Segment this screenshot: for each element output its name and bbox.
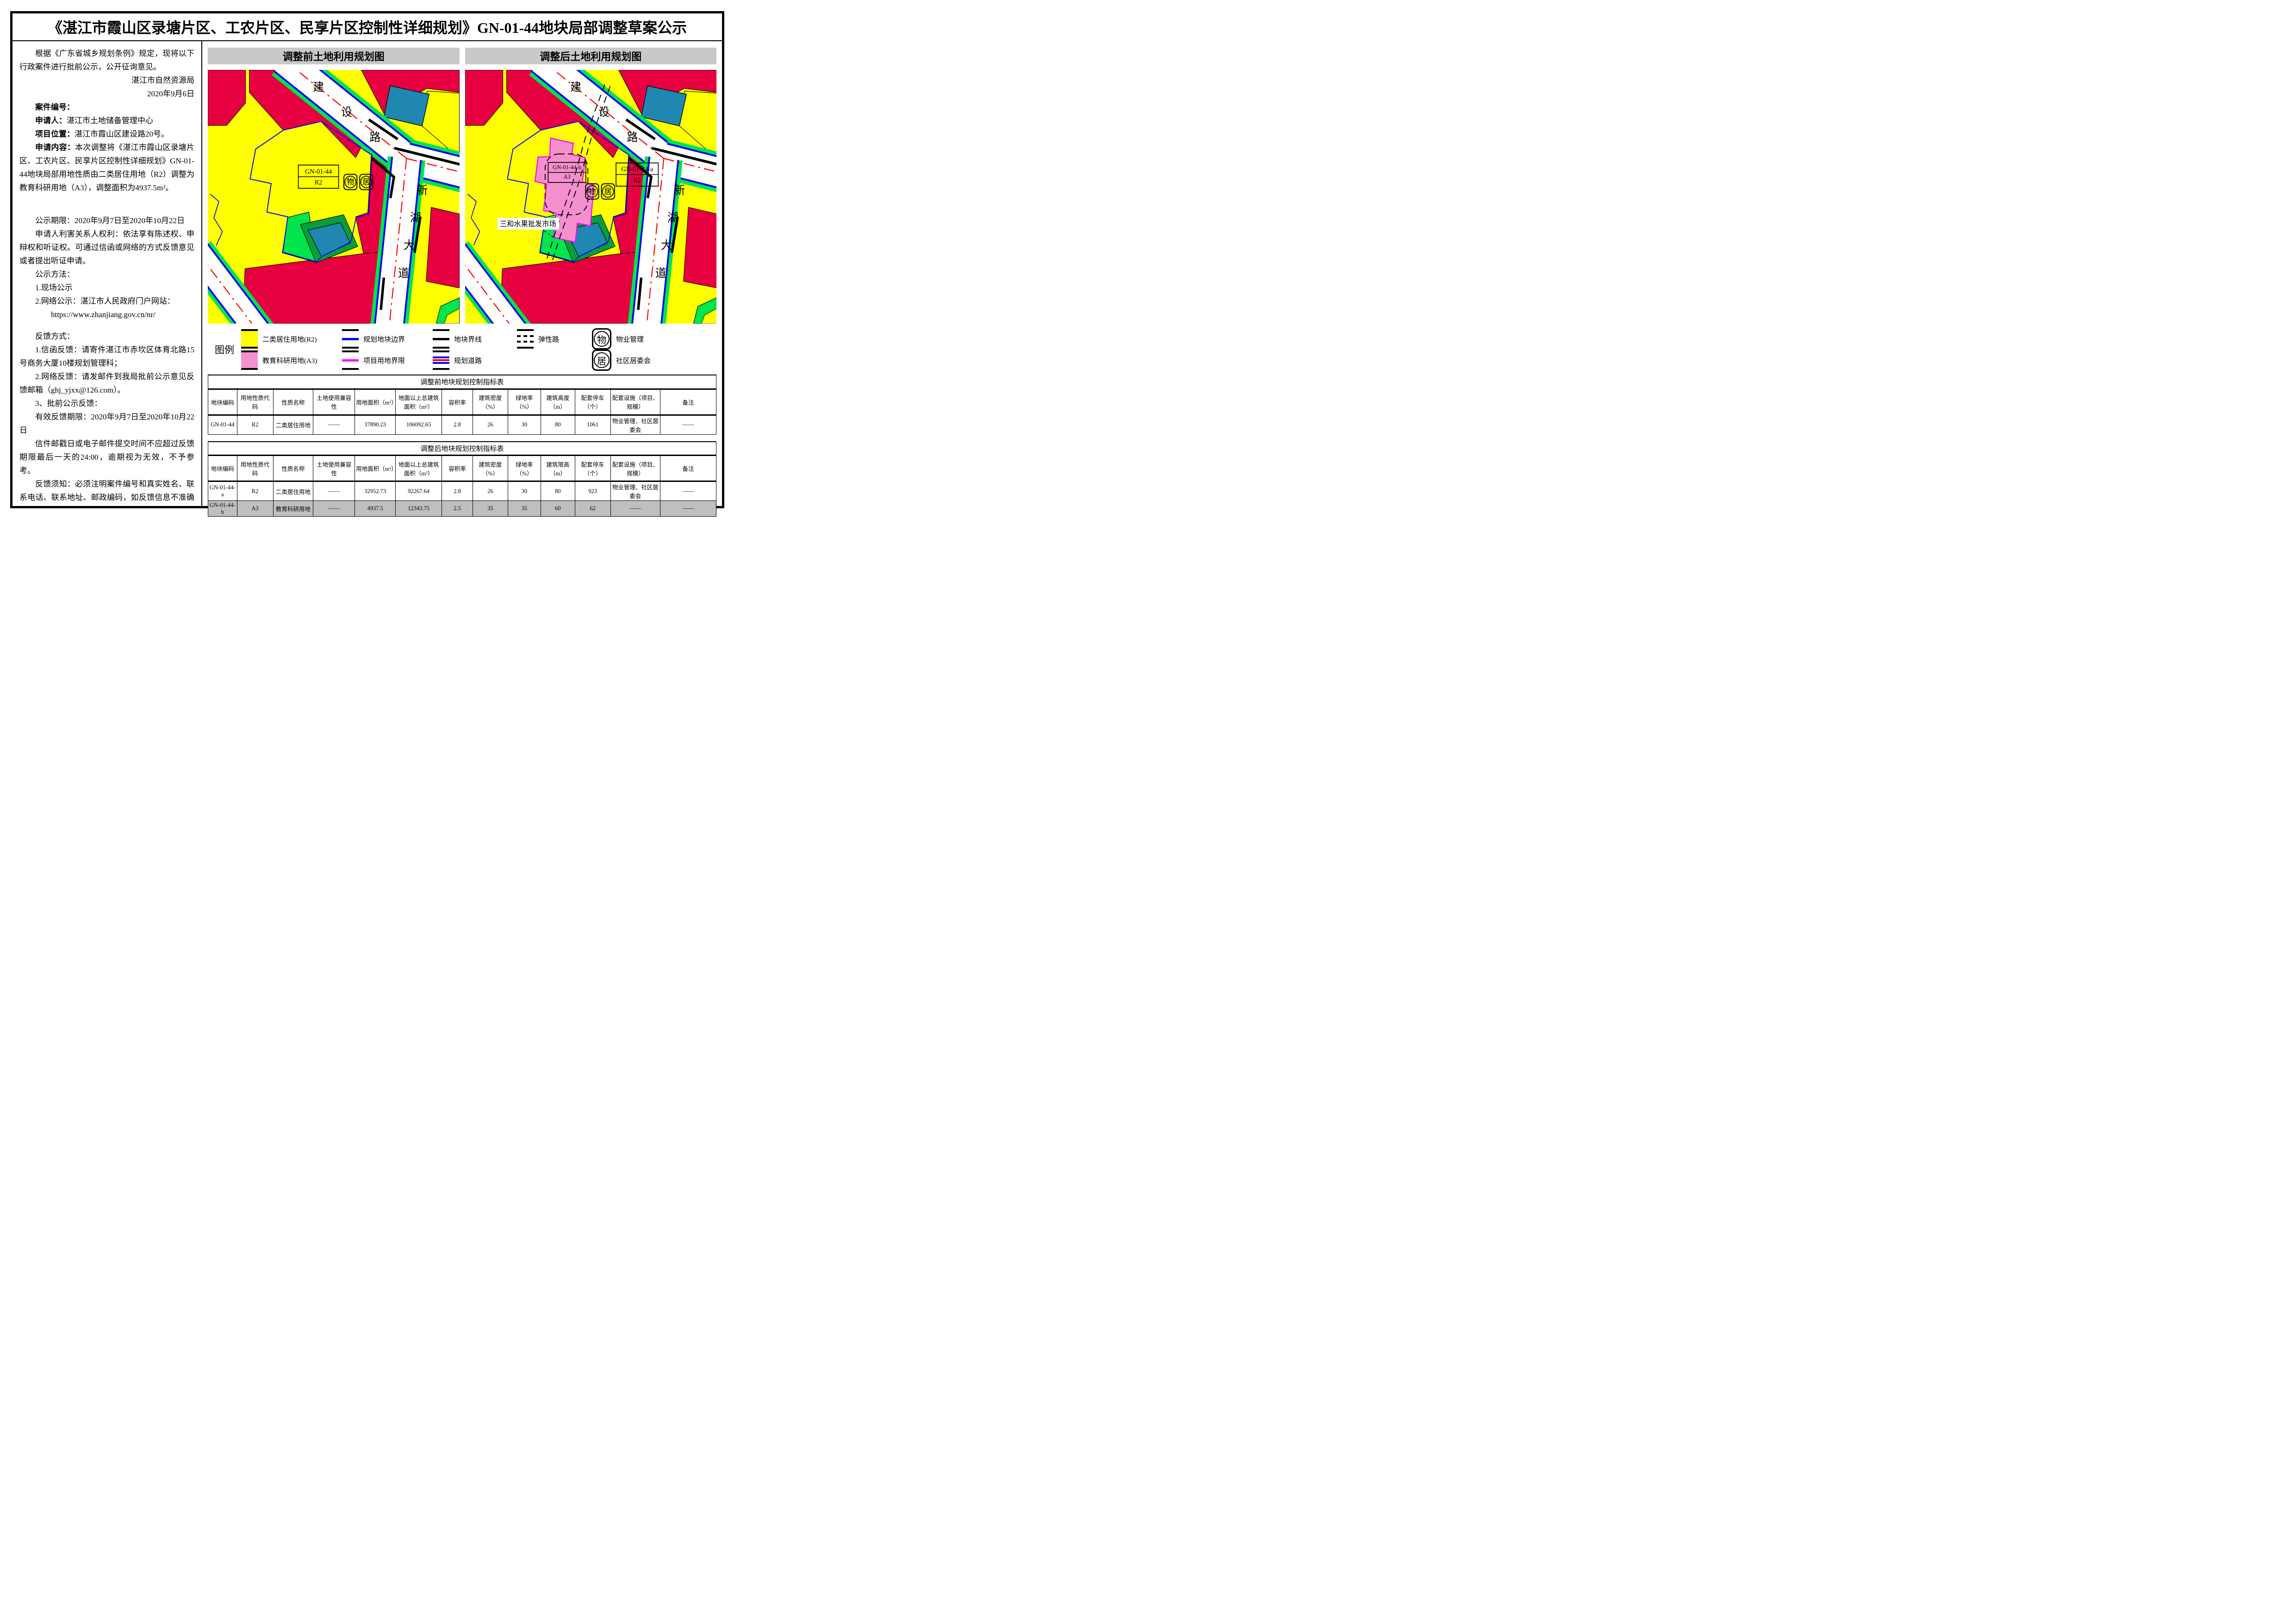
table-cell: R2 [237,481,273,501]
legend-swatch-line [433,329,449,349]
svg-text:物: 物 [347,177,354,186]
parcel-use-code: A3 [563,174,570,180]
legend-swatch-fill [241,329,258,349]
table-title: 调整后地块规划控制指标表 [208,442,716,456]
column-header: 配套停车（个） [575,456,610,481]
legend-label: 社区居委会 [616,356,651,365]
plans-and-tables-panel: 调整前土地利用规划图 GN-01-44R2物居建设路新湖大道 调整后土地利用规划… [202,41,722,506]
legend-item: 二类居住用地(R2) [241,329,342,349]
page-title: 《湛江市霞山区录塘片区、工农片区、民享片区控制性详细规划》GN-01-44地块局… [48,16,687,37]
column-header: 土地使用兼容性 [313,389,355,415]
table-cell: 80 [541,415,575,434]
road-name-char: 湖 [410,211,421,225]
road-name-char: 大 [404,238,415,252]
indicator-table: 调整后地块规划控制指标表地块编码用地性质代码性质名称土地使用兼容性用地面积（m²… [208,441,716,517]
legend-label: 项目用地界限 [363,356,405,365]
table-cell: 35 [473,501,508,517]
column-header: 建筑密度（%） [473,456,508,481]
table-cell: 2.5 [442,501,473,517]
legend-item: 规划道路 [433,350,517,370]
column-header: 配套设施（项目、规模） [610,456,660,481]
legend-grid: 二类居住用地(R2)规划地块边界地块界线弹性路物物业管理教育科研用地(A3)项目… [241,328,716,371]
notice-paragraph: 案件编号： [19,100,194,114]
table-cell: 60 [541,501,575,517]
commercial-parcel [426,207,460,288]
table-cell: 物业管理、社区居委会 [610,415,660,434]
column-header: 地块编码 [208,389,237,415]
legend-swatch-road [433,350,449,370]
parcel-code: GN-01-44-a [621,166,653,173]
parcel-use-code: R2 [633,177,641,184]
column-header: 建筑高度（m） [541,389,575,415]
road-name-char: 设 [598,106,610,119]
notice-paragraph: 反馈方式： [19,330,194,343]
notice-paragraph: 申请人：湛江市土地储备管理中心 [19,114,194,127]
column-header: 容积率 [442,456,473,481]
table-row: GN-01-44-bA3教育科研用地——4937.512343.752.5353… [208,501,716,517]
column-header: 地块编码 [208,456,237,481]
notice-paragraph: 申请内容：本次调整将《湛江市霞山区录塘片区、工农片区、民享片区控制性详细规划》G… [19,141,194,194]
legend-item: 教育科研用地(A3) [241,350,342,370]
field-label: 项目位置： [35,130,75,138]
svg-text:居: 居 [362,177,370,186]
legend-swatch-dash [517,329,534,349]
control-indicator-tables: 调整前地块规划控制指标表地块编码用地性质代码性质名称土地使用兼容性用地面积（m²… [208,375,716,519]
column-header: 性质名称 [273,389,313,415]
table-cell: 37890.23 [355,415,396,434]
table-cell: —— [660,415,716,434]
table-cell: R2 [237,415,273,434]
table-title: 调整前地块规划控制指标表 [208,375,716,389]
column-header: 建筑密度（%） [473,389,508,415]
table-cell: 教育科研用地 [273,501,313,517]
legend-stamp-icon: 物 [592,328,611,350]
table-cell: 1061 [575,415,610,434]
table-cell: —— [313,415,355,434]
map-header-before: 调整前土地利用规划图 [208,48,460,64]
parcel-code: GN-01-44-b [553,164,581,170]
notice-paragraph: 公示期限：2020年9月7日至2020年10月22日 [19,214,194,227]
notice-paragraph: 1.现场公示 [19,281,194,294]
table-title-row: 调整后地块规划控制指标表 [208,442,716,456]
legend-item: 地块界线 [433,329,517,349]
table-cell: 80 [541,481,575,501]
notice-paragraph: https://www.zhanjiang.gov.cn/nr/ [19,308,194,321]
column-header: 用地性质代码 [237,389,273,415]
table-cell: 30 [508,415,541,434]
legend-swatch-fill [241,350,258,370]
column-header: 备注 [660,456,716,481]
svg-text:物: 物 [588,187,596,196]
column-header: 性质名称 [273,456,313,481]
table-cell: —— [610,501,660,517]
table-cell: 32952.73 [355,481,396,501]
column-header: 土地使用兼容性 [313,456,355,481]
column-header: 地面以上总建筑面积（m²） [396,456,442,481]
table-cell: GN-01-44-a [208,481,237,501]
planning-map-svg: GN-01-44R2物居建设路新湖大道 [208,70,460,324]
legend-item: 项目用地界限 [342,350,433,370]
legend-label: 教育科研用地(A3) [262,356,317,365]
legend-label: 规划道路 [454,356,482,365]
table-cell: 2.8 [442,481,473,501]
notice-paragraph: 信件邮戳日或电子邮件提交时间不应超过反馈期限最后一天的24:00，逾期视为无效，… [19,437,194,477]
notice-paragraph: 2.网络公示：湛江市人民政府门户网站： [19,294,194,308]
road-name-char: 新 [674,184,685,197]
legend-item: 弹性路 [517,329,592,349]
map-column-after: 调整后土地利用规划图 GN-01-44-bA3GN-01-44-aR2物居三和水… [465,48,717,324]
column-header: 用地性质代码 [237,456,273,481]
road-name-char: 路 [369,131,380,144]
legend-item: 规划地块边界 [342,329,433,349]
notice-paragraph: 3、批前公示反馈： [19,397,194,410]
legend-label: 物业管理 [616,334,644,344]
road-name-char: 新 [417,184,428,197]
legend-label: 二类居住用地(R2) [262,334,317,344]
field-label: 申请内容： [35,143,75,152]
table-cell: 二类居住用地 [273,415,313,434]
land-use-map-before: GN-01-44R2物居建设路新湖大道 [208,70,460,324]
notice-paragraph: 反馈须知：必须注明案件编号和真实姓名、联系电话、联系地址、邮政编码，如反馈信息不… [19,477,194,506]
table-cell: A3 [237,501,273,517]
legend-item: 居社区居委会 [592,350,680,371]
notice-paragraph: 湛江市自然资源局 [19,74,194,87]
indicator-table: 调整前地块规划控制指标表地块编码用地性质代码性质名称土地使用兼容性用地面积（m²… [208,375,716,435]
notice-text-panel: 根据《广东省城乡规划条例》规定，现将以下行政案件进行批前公示，公开征询意见。湛江… [12,41,202,506]
legend-label: 规划地块边界 [363,334,405,344]
parcel-use-code: R2 [315,179,322,186]
table-cell: 4937.5 [355,501,396,517]
table-cell: 12343.75 [396,501,442,517]
title-band: 《湛江市霞山区录塘片区、工农片区、民享片区控制性详细规划》GN-01-44地块局… [12,13,722,41]
notice-paragraph: 项目位置：湛江市霞山区建设路20号。 [19,127,194,141]
column-header: 绿地率（%） [508,456,541,481]
column-header: 绿地率（%） [508,389,541,415]
table-header-row: 地块编码用地性质代码性质名称土地使用兼容性用地面积（m²）地面以上总建筑面积（m… [208,389,716,415]
road-name-char: 建 [313,81,324,94]
table-cell: 923 [575,481,610,501]
table-row: GN-01-44-aR2二类居住用地——32952.7392267.642.82… [208,481,716,501]
svg-text:居: 居 [604,187,611,196]
column-header: 配套设施（项目、规模） [610,389,660,415]
road-name-char: 道 [655,267,666,280]
notice-paragraph: 根据《广东省城乡规划条例》规定，现将以下行政案件进行批前公示，公开征询意见。 [19,47,194,74]
public-notice-sheet: 《湛江市霞山区录塘片区、工农片区、民享片区控制性详细规划》GN-01-44地块局… [0,0,734,519]
maps-row: 调整前土地利用规划图 GN-01-44R2物居建设路新湖大道 调整后土地利用规划… [208,48,716,324]
road-name-char: 道 [398,267,409,280]
legend-item: 物物业管理 [592,328,680,350]
table-cell: 2.8 [442,415,473,434]
table-cell: GN-01-44 [208,415,237,434]
column-header: 地面以上总建筑面积（m²） [396,389,442,415]
table-cell: —— [660,501,716,517]
commercial-parcel [683,207,716,288]
content-area: 根据《广东省城乡规划条例》规定，现将以下行政案件进行批前公示，公开征询意见。湛江… [12,41,722,506]
table-cell: —— [313,481,355,501]
legend-label: 弹性路 [538,334,559,344]
notice-paragraph: 公示方法： [19,268,194,281]
column-header: 备注 [660,389,716,415]
legend: 图例 二类居住用地(R2)规划地块边界地块界线弹性路物物业管理教育科研用地(A3… [208,328,716,371]
table-cell: 92267.64 [396,481,442,501]
table-cell: 35 [508,501,541,517]
page-frame: 《湛江市霞山区录塘片区、工农片区、民享片区控制性详细规划》GN-01-44地块局… [10,11,724,508]
column-header: 用地面积（m²） [355,389,396,415]
market-label: 三和水果批发市场 [500,220,556,228]
road-name-char: 湖 [667,211,678,225]
legend-stamp-icon: 居 [592,350,611,371]
map-column-before: 调整前土地利用规划图 GN-01-44R2物居建设路新湖大道 [208,48,460,324]
column-header: 用地面积（m²） [355,456,396,481]
legend-label: 地块界线 [454,334,482,344]
table-cell: —— [660,481,716,501]
legend-swatch-line [342,329,359,349]
column-header: 建筑限高（m） [541,456,575,481]
table-cell: 二类居住用地 [273,481,313,501]
notice-paragraph: 有效反馈期限：2020年9月7日至2020年10月22日 [19,410,194,437]
table-header-row: 地块编码用地性质代码性质名称土地使用兼容性用地面积（m²）地面以上总建筑面积（m… [208,456,716,481]
table-cell: 26 [473,415,508,434]
planning-map-svg: GN-01-44-bA3GN-01-44-aR2物居三和水果批发市场建设路新湖大… [465,70,717,324]
road-name-char: 设 [341,106,352,119]
field-label: 申请人： [35,116,67,125]
column-header: 容积率 [442,389,473,415]
table-cell: 106092.65 [396,415,442,434]
table-cell: 62 [575,501,610,517]
notice-paragraph: 申请人利害关系人权利：依法享有陈述权、申辩权和听证权。可通过信函或网络的方式反馈… [19,227,194,268]
road-name-char: 路 [627,131,638,144]
parcel-code: GN-01-44 [305,168,332,175]
field-label: 案件编号： [35,103,75,112]
map-header-after: 调整后土地利用规划图 [465,48,717,64]
notice-paragraph: 2020年9月6日 [19,87,194,100]
land-use-map-after: GN-01-44-bA3GN-01-44-aR2物居三和水果批发市场建设路新湖大… [465,70,717,324]
table-title-row: 调整前地块规划控制指标表 [208,375,716,389]
table-cell: 物业管理、社区居委会 [610,481,660,501]
notice-paragraph: 2.网络反馈：请发邮件到我局批前公示意见反馈邮箱（ghj_yjxx@126.co… [19,370,194,397]
road-name-char: 建 [570,81,581,94]
legend-swatch-line [342,350,359,370]
table-cell: —— [313,501,355,517]
table-cell: 30 [508,481,541,501]
column-header: 配套停车（个） [575,389,610,415]
legend-title: 图例 [208,343,241,356]
notice-paragraph: 1.信函反馈：请寄件湛江市赤坎区体育北路15号商务大厦10楼规划管理科； [19,343,194,370]
table-cell: 26 [473,481,508,501]
table-cell: GN-01-44-b [208,501,237,517]
road-name-char: 大 [660,238,672,252]
table-row: GN-01-44R2二类居住用地——37890.23106092.652.826… [208,415,716,434]
